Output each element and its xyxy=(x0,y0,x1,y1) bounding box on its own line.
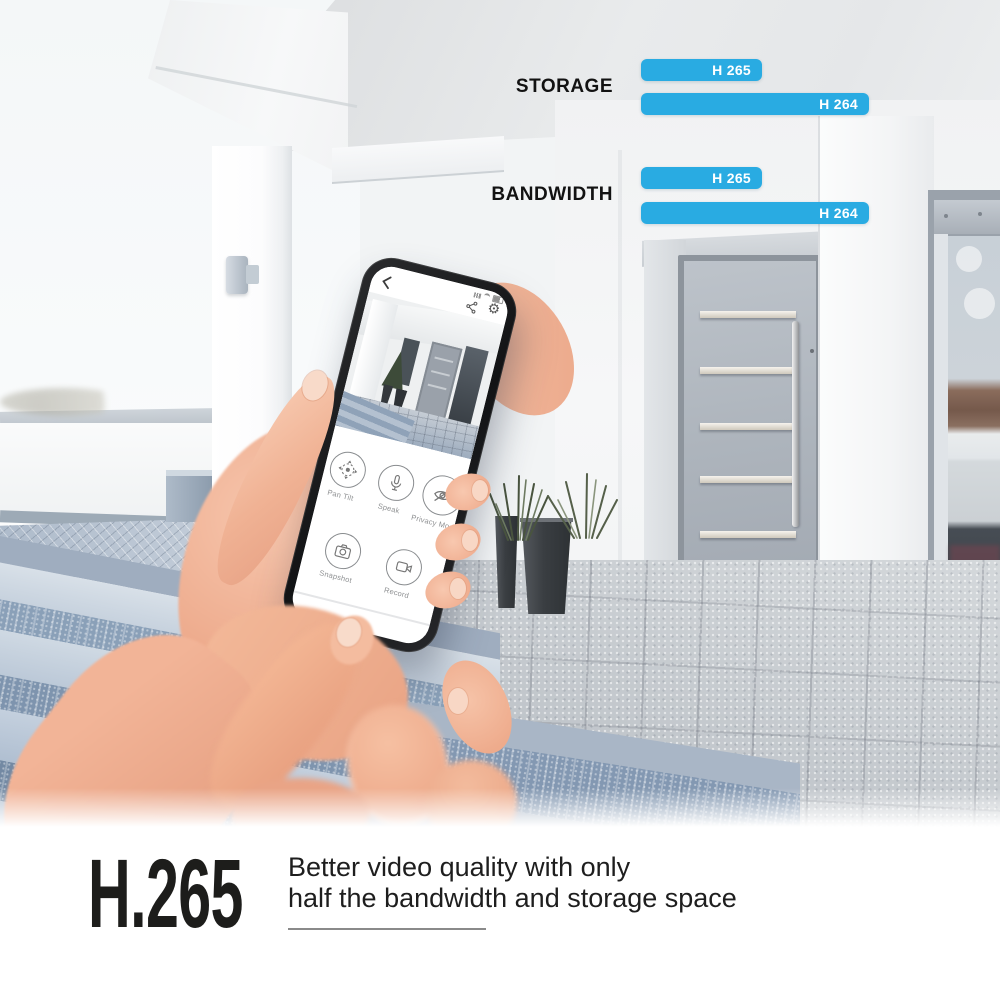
storage-label: STORAGE xyxy=(438,76,613,98)
glass-decal xyxy=(956,246,982,272)
video-record-icon xyxy=(392,555,416,579)
wall-lamp-bracket xyxy=(246,265,259,284)
bandwidth-label: BANDWIDTH xyxy=(438,184,613,206)
photo-bottom-fade xyxy=(0,788,1000,832)
door-strip xyxy=(700,531,796,538)
caption-band: H.265 Better video quality with only hal… xyxy=(0,832,1000,1000)
codec-title: H.265 xyxy=(88,845,243,942)
snapshot-label: Snapshot xyxy=(304,564,368,588)
share-icon[interactable] xyxy=(463,299,480,316)
snapshot-button[interactable] xyxy=(321,529,365,573)
bandwidth-h265-bar: H 265 xyxy=(641,167,762,189)
window-shutter-box xyxy=(934,200,1000,234)
front-door xyxy=(684,261,816,591)
bandwidth-h264-bar: H 264 xyxy=(641,202,869,224)
tagline-line2: half the bandwidth and storage space xyxy=(288,883,737,914)
finger-nail xyxy=(472,480,488,501)
speak-button[interactable] xyxy=(374,461,418,505)
signal-icon xyxy=(473,292,481,298)
settings-gear-icon[interactable]: ⚙ xyxy=(486,300,502,319)
tagline-underline xyxy=(288,928,486,930)
house-entrance-photo: ⚙ xyxy=(0,0,1000,832)
pan-tilt-button[interactable] xyxy=(326,448,370,492)
distant-bushes xyxy=(0,388,128,416)
finger-nail xyxy=(462,530,478,551)
storage-h265-bar: H 265 xyxy=(641,59,762,81)
finger-nail xyxy=(448,688,468,714)
screw xyxy=(944,214,948,218)
door-strip xyxy=(700,476,796,483)
pan-tilt-icon xyxy=(335,456,362,483)
finger-nail xyxy=(450,578,466,599)
record-button[interactable] xyxy=(382,545,426,589)
door-strip xyxy=(700,423,796,430)
tagline-line1: Better video quality with only xyxy=(288,852,737,883)
door-lock xyxy=(810,349,814,353)
screw xyxy=(978,212,982,216)
record-label: Record xyxy=(364,581,428,605)
door-handle xyxy=(792,321,799,527)
storage-h264-bar: H 264 xyxy=(641,93,869,115)
door-strip xyxy=(700,367,796,374)
ornamental-grass xyxy=(486,460,620,542)
wall-lamp xyxy=(226,256,248,294)
promo-image: ⚙ xyxy=(0,0,1000,1000)
camera-icon xyxy=(331,539,355,563)
glass-decal xyxy=(964,288,995,319)
door-strip xyxy=(700,311,796,318)
tagline: Better video quality with only half the … xyxy=(288,852,737,914)
microphone-icon xyxy=(384,471,408,495)
back-icon[interactable] xyxy=(379,273,394,290)
